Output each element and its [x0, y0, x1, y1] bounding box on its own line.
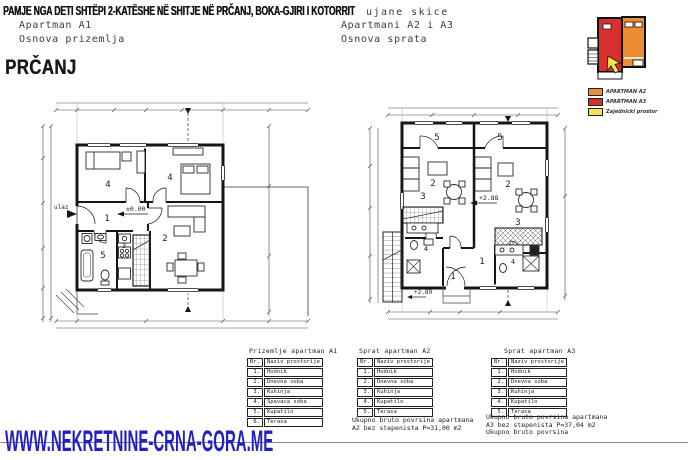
col-header-naziv: Naziv prostorije	[374, 358, 433, 367]
elevation-label: +2.88	[479, 194, 499, 202]
stair-elevation-marker-a23: +2.89	[407, 289, 432, 299]
cell-no: 1.	[357, 368, 373, 377]
plan-a23-caption-line1: Apartmani A2 i A3	[341, 19, 454, 33]
plan-a1-caption: Apartman A1 Osnova prizemlja	[19, 19, 125, 47]
table-row: 2.Dnevna soba	[491, 378, 567, 387]
room-label-bedroom-left: 4	[105, 180, 110, 190]
legend-label-a2: APARTMAN A2	[606, 89, 646, 95]
listing-headline: PAMJE NGA DETI SHTËPI 2-KATËSHE NË SHITJ…	[3, 3, 355, 18]
room-label-terrace-right: 5	[497, 133, 502, 143]
cell-name: Kuhinja	[264, 388, 323, 397]
plan-a23-caption: Apartmani A2 i A3 Osnova sprata	[341, 19, 454, 47]
cell-no: 1.	[491, 368, 507, 377]
cell-no: 2.	[357, 378, 373, 387]
stair-elevation-label: +2.89	[414, 289, 432, 296]
underlay-sketch-caption: ujane skice	[366, 7, 449, 18]
plan-a23-caption-line2: Osnova sprata	[341, 33, 454, 47]
room-label-hall: 1	[104, 214, 109, 224]
cell-name: Hodnik	[508, 368, 567, 377]
room-label-living-right: 2	[505, 180, 510, 190]
col-header-br: Br.	[357, 358, 373, 367]
table-header-row: Br.Naziv prostorije	[247, 358, 323, 367]
room-table-a2: Sprat apartman A2 Br.Naziv prostorije 1.…	[356, 347, 434, 418]
table-row: 5.Kupatilo	[247, 408, 323, 417]
room-label-hall-left: 1	[450, 272, 455, 282]
mini-window	[603, 24, 611, 29]
room-label-hall-right: 1	[479, 257, 484, 267]
col-header-naziv: Naziv prostorije	[264, 358, 323, 367]
elevation-label: ±0.00	[126, 205, 146, 213]
legend-item-a3: APARTMAN A3	[588, 98, 657, 106]
table-row: 3.Kuhinja	[357, 388, 433, 397]
cell-no: 3.	[247, 388, 263, 397]
mini-key-plan	[584, 10, 652, 82]
table-row: 4.Spavaca soba	[247, 398, 323, 407]
table-row: 1.Hodnik	[491, 368, 567, 377]
floor-plan-a23: +2.88 +2.89 5 5 2 2 3 3 1 1 4 4	[358, 98, 590, 339]
table-header-row: Br.Naziv prostorije	[357, 358, 433, 367]
table-row: 2.Dnevna soba	[357, 378, 433, 387]
cell-no: 3.	[357, 388, 373, 397]
mini-window	[625, 22, 633, 27]
plan-a1-caption-line2: Osnova prizemlja	[19, 33, 125, 47]
mini-bath	[633, 60, 643, 66]
room-table-a3: Sprat apartman A3 Br.Naziv prostorije 1.…	[490, 347, 576, 418]
cell-no: 4.	[247, 398, 263, 407]
room-table-a3-title: Sprat apartman A3	[504, 347, 576, 355]
room-table-a1-title: Prizemlje apartman A1	[249, 347, 337, 355]
room-label-living: 2	[162, 234, 167, 244]
table-row: 1.Hodnik	[357, 368, 433, 377]
room-table-a3-grid: Br.Naziv prostorije 1.Hodnik 2.Dnevna so…	[490, 357, 568, 418]
table-header-row: Br.Naziv prostorije	[491, 358, 567, 367]
room-label-living-left: 2	[430, 179, 435, 189]
table-row: 3.Kuhinja	[491, 388, 567, 397]
plan-a1-caption-line1: Apartman A1	[19, 19, 125, 33]
legend: APARTMAN A2 APARTMAN A3 Zajednicki prost…	[588, 88, 657, 118]
legend-item-a2: APARTMAN A2	[588, 88, 657, 96]
room-label-kitchen-left: 3	[420, 192, 425, 202]
room-label-bath-right: 4	[511, 258, 515, 266]
cell-name: Hodnik	[264, 368, 323, 377]
cell-name: Dnevna soba	[264, 378, 323, 387]
room-table-a2-grid: Br.Naziv prostorije 1.Hodnik 2.Dnevna so…	[356, 357, 434, 418]
entrance-label: ulaz	[54, 204, 69, 211]
room-label-kitchen-right: 3	[515, 218, 520, 228]
table-row: 3.Kuhinja	[247, 388, 323, 397]
col-header-br: Br.	[247, 358, 263, 367]
cell-no: 2.	[247, 378, 263, 387]
table-row: 1.Hodnik	[247, 368, 323, 377]
cell-name: Dnevna soba	[508, 378, 567, 387]
table-row: 2.Dnevna soba	[247, 378, 323, 387]
mini-box	[588, 38, 598, 48]
listing-sheet: { "header": { "title": "PAMJE NGA DETI S…	[0, 0, 688, 460]
summary-a3: Ukupno bruto povrsina apartmana A3 bez s…	[486, 414, 607, 437]
cell-name: Spavaca soba	[264, 398, 323, 407]
mini-stairs	[588, 50, 598, 64]
room-label-bath: 5	[100, 251, 105, 261]
table-row: 4.Kupatilo	[357, 398, 433, 407]
location-heading: PRČANJ	[5, 56, 76, 80]
room-label-kitchen: 3	[122, 242, 126, 250]
cell-no: 1.	[247, 368, 263, 377]
entry-steps-a1	[56, 289, 98, 314]
legend-swatch-a2	[588, 88, 603, 96]
cell-name: Kuhinja	[374, 388, 433, 397]
summary-a2-line2: A2 bez stepenista P=31,00 m2	[352, 425, 473, 433]
room-table-a1: Prizemlje apartman A1 Br.Naziv prostorij…	[246, 347, 337, 428]
summary-a2: Ukupno bruto povrsina apartmana A2 bez s…	[352, 417, 473, 432]
external-stairs-a23	[383, 232, 402, 302]
room-label-bedroom-right: 4	[167, 173, 172, 183]
cell-no: 2.	[491, 378, 507, 387]
mini-window	[635, 22, 642, 27]
cell-no: 3.	[491, 388, 507, 397]
cell-name: Kupatilo	[508, 398, 567, 407]
col-header-br: Br.	[491, 358, 507, 367]
watermark-url: WWW.NEKRETNINE-CRNA-GORA.ME	[5, 429, 273, 455]
legend-swatch-a3	[588, 98, 603, 106]
cell-no: 4.	[357, 398, 373, 407]
room-table-a1-grid: Br.Naziv prostorije 1.Hodnik 2.Dnevna so…	[246, 357, 324, 428]
cell-name: Dnevna soba	[374, 378, 433, 387]
cell-no: 5.	[247, 408, 263, 417]
room-label-bath-left: 4	[424, 245, 428, 253]
legend-swatch-shared	[588, 108, 603, 116]
cell-name: Kuhinja	[508, 388, 567, 397]
cell-name: Kupatilo	[374, 398, 433, 407]
room-table-a2-title: Sprat apartman A2	[359, 347, 434, 355]
floor-plan-a1: ulaz ±0.00 1 2 3 4 4 5	[36, 98, 317, 339]
legend-label-a3: APARTMAN A3	[606, 99, 646, 105]
room-label-terrace-left: 5	[434, 133, 439, 143]
cell-name: Kupatilo	[264, 408, 323, 417]
legend-label-shared: Zajednicki prostor	[606, 109, 657, 115]
legend-item-shared: Zajednicki prostor	[588, 108, 657, 116]
col-header-naziv: Naziv prostorije	[508, 358, 567, 367]
summary-a3-line3: Ukupno bruto povrsina	[486, 429, 607, 437]
stairs-a1	[133, 235, 150, 286]
mini-landing	[598, 72, 622, 79]
cell-name: Hodnik	[374, 368, 433, 377]
table-row: 4.Kupatilo	[491, 398, 567, 407]
cell-no: 4.	[491, 398, 507, 407]
